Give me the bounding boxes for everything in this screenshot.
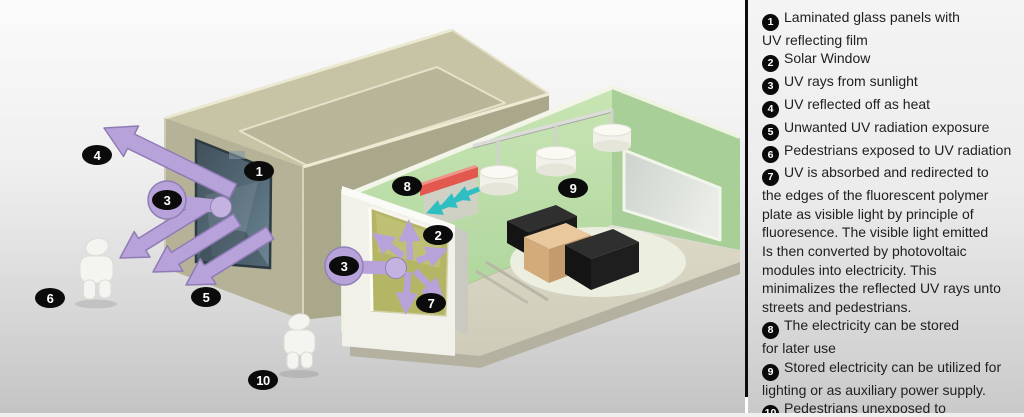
callout-9-lighting: 9 [558, 178, 588, 198]
callout-3-uv-ray-right: 3 [329, 256, 359, 276]
legend-number-badge: 1 [762, 14, 779, 31]
callout-2-solar-window: 2 [423, 225, 453, 245]
callout-3-uv-ray-left: 3 [152, 190, 182, 210]
uv-solar-window-infographic: 1 2 3 3 4 5 6 7 8 9 10 1Laminated glass … [0, 0, 1024, 417]
callout-1-glass-panel: 1 [244, 161, 274, 181]
legend-text: streets and pedestrians. [762, 298, 1022, 317]
pedestrian-unexposed [279, 312, 319, 378]
legend-panel: 1Laminated glass panels with UV reflecti… [748, 0, 1024, 417]
legend-text: for later use [762, 339, 1022, 358]
lamp-3 [593, 124, 631, 152]
legend-text: the edges of the fluorescent polymer [762, 186, 1022, 205]
legend-item-4: 4UV reflected off as heat [762, 95, 1022, 118]
legend-text: fluoresence. The visible light emitted [762, 223, 1022, 242]
legend-text: Stored electricity can be utilized for [784, 359, 1001, 375]
lamp-2 [536, 147, 576, 177]
legend-text: lighting or as auxiliary power supply. [762, 381, 1022, 400]
legend-text: The electricity can be stored [784, 317, 959, 333]
legend-item-2: 2Solar Window [762, 49, 1022, 72]
legend-text: Solar Window [784, 50, 870, 66]
diagram-canvas: 1 2 3 3 4 5 6 7 8 9 10 [0, 0, 745, 417]
legend-text: minimalizes the reflected UV rays unto [762, 279, 1022, 298]
legend-number-badge: 3 [762, 78, 779, 95]
legend-item-8: 8The electricity can be stored for later… [762, 316, 1022, 357]
callout-7-fluorescent-plate: 7 [416, 293, 446, 313]
legend-text: UV reflected off as heat [784, 96, 930, 112]
legend-text: Unwanted UV radiation exposure [784, 119, 989, 135]
legend-number-badge: 8 [762, 322, 779, 339]
callout-5-uv-exposure: 5 [191, 287, 221, 307]
isometric-scene [0, 0, 745, 417]
lamp-1 [480, 166, 518, 196]
callout-4-reflected-heat: 4 [82, 145, 112, 165]
pedestrian-exposed [75, 236, 117, 309]
legend-text: Is then converted by photovoltaic [762, 242, 1022, 261]
callout-8-stored-electricity: 8 [392, 176, 422, 196]
legend-number-badge: 5 [762, 124, 779, 141]
legend-text: Pedestrians exposed to UV radiation [784, 142, 1011, 158]
legend-number-badge: 6 [762, 146, 779, 163]
legend-text: UV rays from sunlight [784, 73, 918, 89]
legend-item-1: 1Laminated glass panels with UV reflecti… [762, 8, 1022, 49]
legend-text: Laminated glass panels with [784, 9, 960, 25]
legend-item-6: 6Pedestrians exposed to UV radiation [762, 141, 1022, 164]
legend-item-7: 7UV is absorbed and redirected to the ed… [762, 163, 1022, 316]
legend-text: modules into electricity. This [762, 261, 1022, 280]
legend-text: UV is absorbed and redirected to [784, 164, 989, 180]
legend-number-badge: 9 [762, 364, 779, 381]
legend-number-badge: 2 [762, 55, 779, 72]
legend-number-badge: 7 [762, 169, 779, 186]
callout-10-unexposed-pedestrian: 10 [248, 370, 278, 390]
legend-text: UV reflecting film [762, 31, 1022, 50]
legend-item-9: 9Stored electricity can be utilized for … [762, 358, 1022, 399]
legend-number-badge: 4 [762, 101, 779, 118]
legend-item-5: 5Unwanted UV radiation exposure [762, 118, 1022, 141]
bottom-edge [0, 413, 1024, 417]
legend-text: plate as visible light by principle of [762, 205, 1022, 224]
callout-6-exposed-pedestrian: 6 [35, 288, 65, 308]
legend-item-3: 3UV rays from sunlight [762, 72, 1022, 95]
